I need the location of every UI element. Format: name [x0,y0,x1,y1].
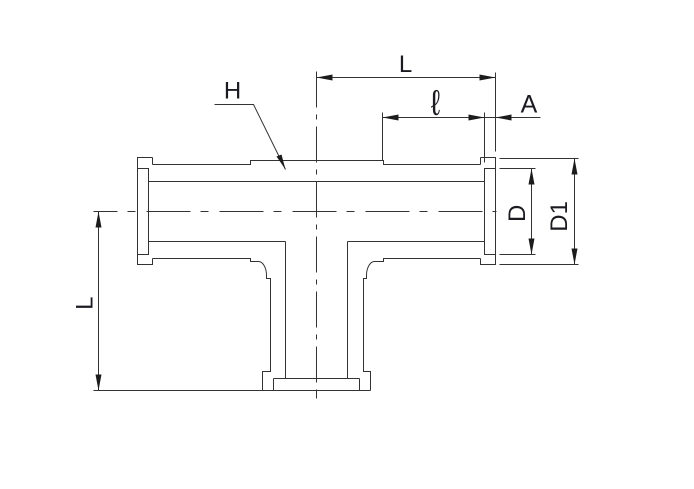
svg-text:L: L [72,297,99,310]
svg-text:A: A [521,90,538,118]
svg-text:ℓ: ℓ [431,82,441,122]
svg-text:L: L [399,51,412,78]
svg-text:D: D [504,205,531,222]
svg-text:H: H [224,77,241,104]
svg-text:D1: D1 [546,201,573,232]
